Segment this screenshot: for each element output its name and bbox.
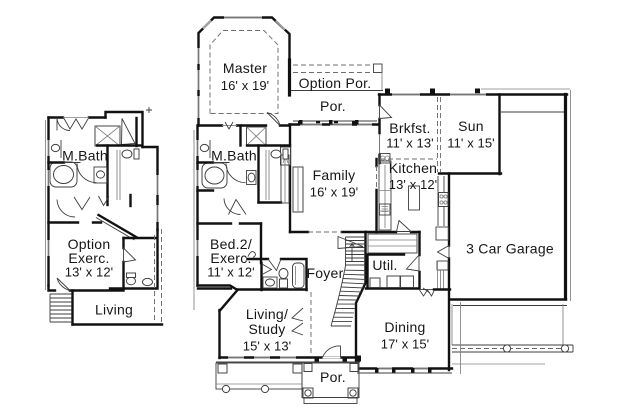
svg-text:11' x 12': 11' x 12': [207, 265, 255, 280]
svg-text:Brkfst.: Brkfst.: [389, 120, 430, 136]
svg-text:11' x 15': 11' x 15': [447, 136, 495, 151]
svg-text:17' x 15': 17' x 15': [381, 337, 430, 352]
svg-text:Util.: Util.: [372, 257, 397, 273]
svg-text:Por.: Por.: [320, 369, 346, 385]
svg-text:Option Por.: Option Por.: [299, 75, 372, 91]
svg-text:3 Car Garage: 3 Car Garage: [466, 241, 554, 257]
svg-text:16' x 19': 16' x 19': [221, 78, 270, 93]
svg-text:11' x 13': 11' x 13': [386, 136, 434, 151]
svg-text:16' x 19': 16' x 19': [310, 185, 359, 200]
svg-text:13' x 12': 13' x 12': [389, 177, 438, 192]
svg-text:Living/: Living/: [246, 306, 288, 322]
svg-text:Por.: Por.: [320, 98, 346, 114]
svg-text:M.Bath: M.Bath: [211, 148, 257, 164]
svg-text:Family: Family: [313, 167, 356, 183]
svg-text:M.Bath: M.Bath: [62, 148, 108, 164]
svg-text:Master: Master: [223, 60, 267, 76]
svg-text:15' x 13': 15' x 13': [243, 339, 292, 354]
svg-text:Study: Study: [248, 321, 285, 337]
svg-text:Living: Living: [95, 302, 133, 318]
svg-text:Sun: Sun: [458, 118, 484, 134]
svg-text:Kitchen: Kitchen: [389, 160, 437, 176]
svg-text:Foyer: Foyer: [306, 265, 343, 281]
svg-text:13' x 12': 13' x 12': [65, 265, 114, 280]
svg-text:Dining: Dining: [384, 319, 425, 335]
